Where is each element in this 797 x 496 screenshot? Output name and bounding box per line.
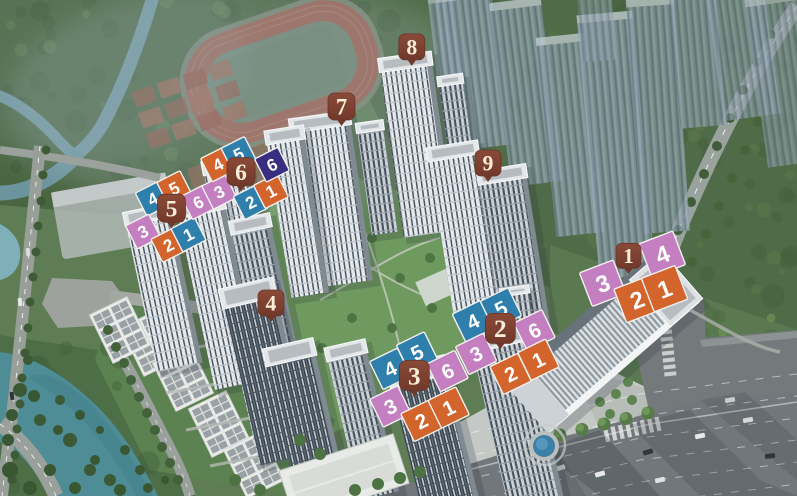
svg-text:1: 1	[623, 244, 634, 268]
svg-text:9: 9	[483, 152, 494, 176]
svg-text:5: 5	[166, 196, 178, 222]
svg-text:3: 3	[408, 363, 421, 390]
svg-text:6: 6	[235, 160, 247, 186]
svg-text:7: 7	[336, 94, 347, 119]
svg-text:8: 8	[406, 36, 417, 60]
svg-text:4: 4	[266, 292, 277, 316]
svg-text:2: 2	[494, 316, 507, 343]
